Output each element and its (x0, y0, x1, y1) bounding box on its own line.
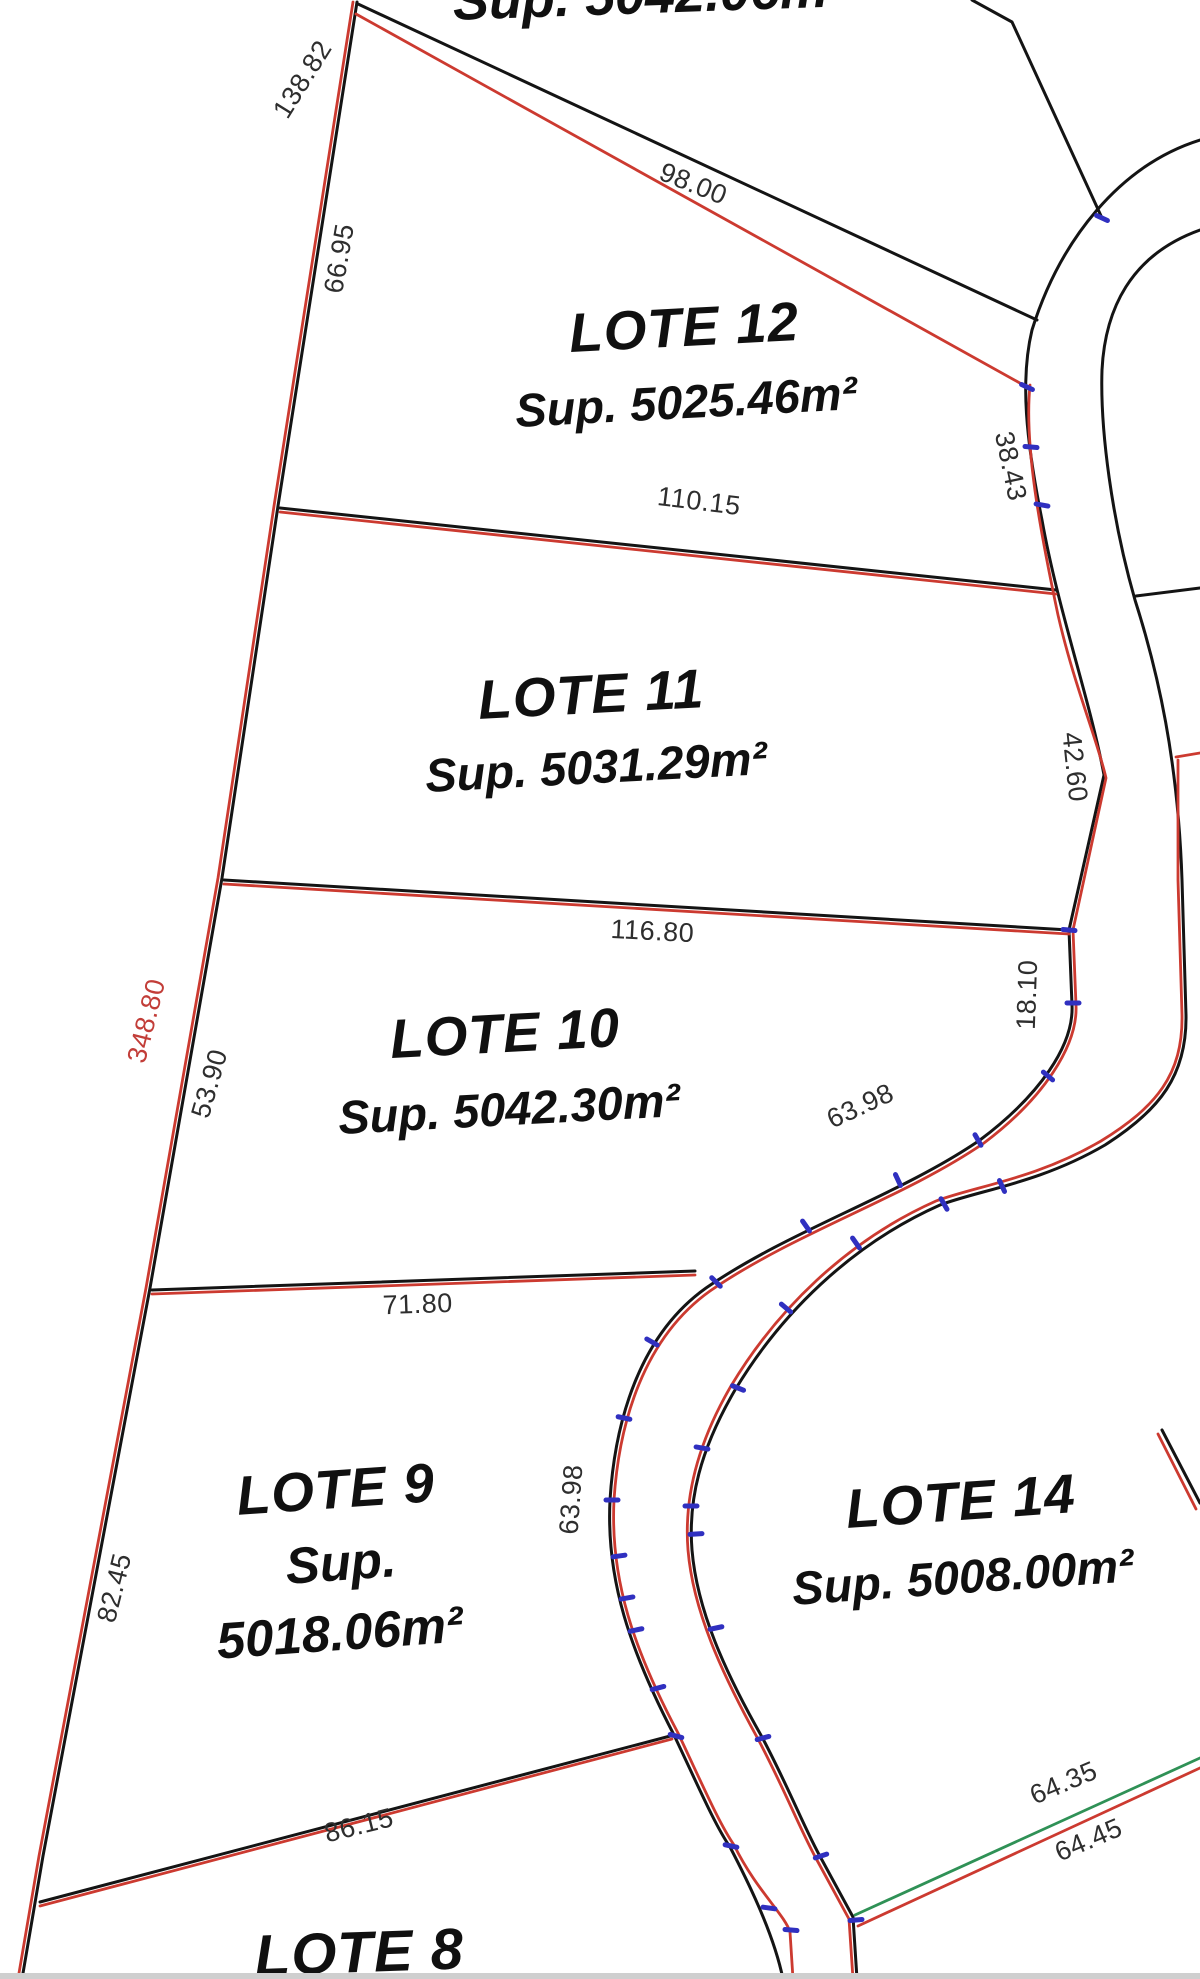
top-clipped-area-label: Sup. 5042.06m² (452, 0, 849, 32)
lot12-lot11-divider-line (280, 508, 1056, 590)
dim-curve-lot9: 63.98 (554, 1463, 589, 1535)
lot10-name: LOTE 10 (388, 996, 621, 1070)
survey-tick (757, 1736, 769, 1739)
lot14-name: LOTE 14 (844, 1462, 1078, 1540)
survey-tick (1063, 929, 1075, 930)
lot14-area: Sup. 5008.00m² (790, 1538, 1136, 1615)
right-edge-stub-line (1136, 588, 1200, 596)
survey-tick (690, 1534, 702, 1535)
lot14-east-red-line (1158, 1434, 1196, 1509)
dim-lot10-frontage: 18.10 (1011, 959, 1043, 1030)
lot12-name: LOTE 12 (567, 290, 800, 364)
lot11-name: LOTE 11 (477, 657, 706, 731)
survey-tick (1025, 446, 1037, 447)
survey-tick (853, 1238, 860, 1248)
survey-tick (696, 1447, 708, 1449)
dim-left-upper: 66.95 (318, 221, 360, 295)
dim-lot12-south: 110.15 (656, 481, 743, 521)
right-edge-red-stub-line (1176, 753, 1200, 757)
survey-tick (763, 1907, 775, 1909)
survey-tick (621, 1597, 633, 1599)
dim-road-mid: 42.60 (1056, 731, 1093, 804)
lot12-north-boundary-line (358, 4, 1037, 320)
dim-left-total-red: 348.80 (121, 976, 171, 1066)
dim-lot9-south: 86.15 (321, 1802, 396, 1848)
dim-left-mid: 53.90 (185, 1046, 233, 1122)
dim-lot11-south: 116.80 (610, 914, 695, 948)
lot12-area: Sup. 5025.46m² (514, 366, 860, 437)
lot9-name: LOTE 9 (234, 1451, 436, 1527)
survey-tick (785, 1929, 797, 1930)
road-inner-red-line (687, 760, 1182, 1979)
survey-tick (1097, 215, 1108, 220)
survey-tick (781, 1304, 790, 1312)
cadastral-plat-map: Sup. 5042.06m² 138.82 66.95 98.00 LOTE 1… (0, 0, 1200, 1979)
scan-bottom-edge (0, 1973, 1200, 1979)
labels: Sup. 5042.06m² 138.82 66.95 98.00 LOTE 1… (91, 0, 1136, 1979)
survey-tick (710, 1627, 722, 1629)
lot11-area: Sup. 5031.29m² (424, 731, 770, 802)
lot10-area: Sup. 5042.30m² (337, 1073, 683, 1144)
survey-tick (725, 1845, 737, 1847)
survey-tick (652, 1686, 664, 1689)
west-boundary-red-line (18, 2, 353, 1979)
survey-tick (895, 1175, 900, 1186)
road-inner-edge-line (691, 230, 1200, 1979)
survey-tick (630, 1629, 642, 1631)
lot12-lot11-red-line (280, 512, 1056, 594)
survey-tick (803, 1221, 810, 1231)
survey-tick (815, 1854, 826, 1858)
dim-green-line: 64.35 (1025, 1755, 1101, 1810)
survey-tick (850, 1919, 862, 1920)
dim-lot10-south: 71.80 (382, 1288, 453, 1320)
survey-tick (941, 1199, 947, 1209)
survey-tick (613, 1555, 625, 1557)
lot8-name: LOTE 8 (254, 1916, 465, 1979)
lot14-east-boundary-line (1162, 1430, 1200, 1503)
dim-curve-lot10: 63.98 (822, 1077, 898, 1134)
survey-tick (670, 1734, 682, 1737)
survey-tick (618, 1417, 630, 1419)
lot10-lot9-divider-line (152, 1271, 695, 1290)
survey-tick (1036, 504, 1048, 506)
northeast-lot-divider-line (972, 0, 1102, 218)
dim-road-curve-upper: 38.43 (989, 429, 1033, 504)
lot9-sup: Sup. (284, 1530, 398, 1595)
dim-left-top: 138.82 (267, 35, 338, 123)
road-outer-red-line (614, 385, 1106, 1979)
lot9-area: 5018.06m² (215, 1595, 467, 1669)
